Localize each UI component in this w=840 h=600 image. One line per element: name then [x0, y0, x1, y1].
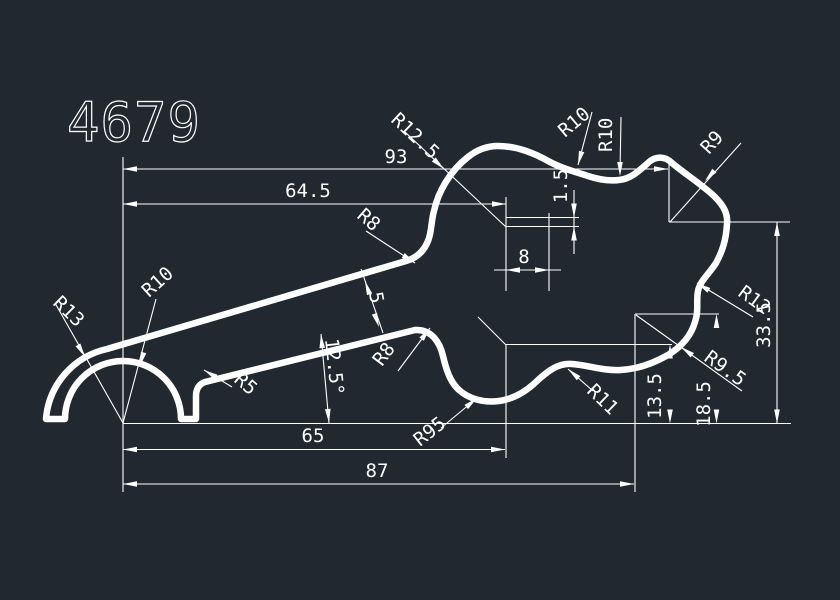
label-dim-8: 8 [518, 246, 529, 268]
leader-r9 [670, 143, 741, 222]
label-radius-r10-arch: R10 [138, 262, 178, 301]
label-radius-r10-mid: R10 [595, 118, 617, 152]
extension-corner-diagonal [478, 317, 506, 345]
drawing-canvas[interactable]: 4679 [0, 0, 840, 600]
drawing-number: 4679 [67, 91, 201, 154]
label-radius-r9: R9 [696, 127, 728, 159]
label-dim-64-5: 64.5 [285, 180, 331, 202]
label-radius-r13: R13 [49, 292, 89, 332]
label-dim-angle-12-5: 12.5° [320, 337, 348, 396]
label-dim-18-5: 18.5 [693, 381, 715, 427]
cad-viewport[interactable]: 4679 [0, 0, 840, 600]
label-radius-r95: R95 [410, 412, 451, 450]
label-dim-13-5: 13.5 [644, 373, 666, 419]
label-dim-thickness-5: 5 [364, 290, 388, 305]
label-radius-r10-upper: R10 [554, 103, 594, 142]
label-dim-65: 65 [302, 425, 325, 447]
label-radius-r8-upper: R8 [353, 204, 385, 236]
label-dim-93: 93 [385, 146, 408, 168]
label-radius-r11: R11 [583, 380, 623, 420]
label-dim-1-5: 1.5 [550, 169, 572, 203]
label-dim-87: 87 [366, 460, 389, 482]
